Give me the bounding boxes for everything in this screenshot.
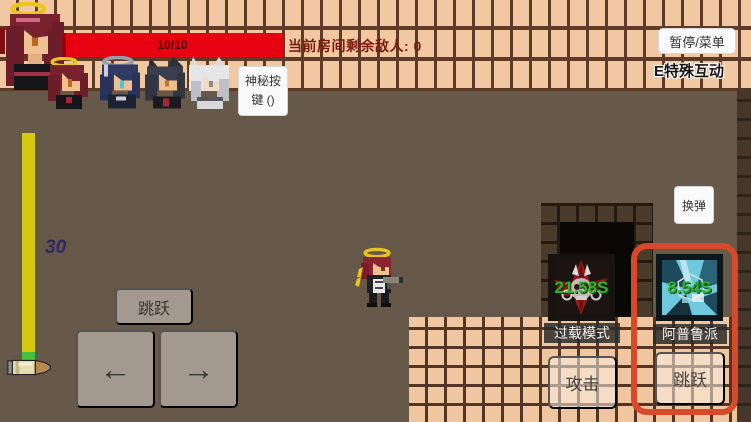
- right-arrow-icon: →: [183, 351, 215, 388]
- pause-menu-button[interactable]: 暂停/菜单: [658, 28, 736, 54]
- player-character: [351, 245, 405, 309]
- game-screen: 10/10 当前房间剩余敌人: 0 暂停/菜单 E特殊互动: [0, 0, 751, 422]
- skill-overload-icon[interactable]: 21.58S: [548, 254, 615, 321]
- health-value: 10/10: [157, 38, 187, 52]
- enemy-counter: 当前房间剩余敌人: 0: [288, 36, 422, 56]
- reload-button[interactable]: 换弹: [674, 186, 714, 224]
- wing-mark-icon: [355, 277, 361, 287]
- health-bar-notch: [62, 33, 66, 57]
- skill-jump-button[interactable]: 跳跃: [655, 352, 725, 405]
- team-portrait-4: [186, 57, 234, 109]
- halo-icon: [52, 58, 76, 65]
- attack-button[interactable]: 攻击: [548, 356, 617, 409]
- gun-icon: [383, 277, 401, 283]
- skill-apulupai-cooldown: 8.54S: [656, 278, 723, 298]
- bullet-icon: [6, 357, 54, 378]
- skill-overload-label: 过载模式: [544, 323, 620, 343]
- skill-apulupai-label: 阿普鲁派: [653, 324, 727, 344]
- mystery-key-label-line2: 键 (): [251, 91, 274, 110]
- special-interact-label: E特殊互动: [654, 60, 724, 81]
- health-bar: 10/10: [62, 33, 283, 57]
- move-right-button[interactable]: →: [159, 330, 238, 408]
- right-wall-shadow: [737, 88, 751, 422]
- jump-button[interactable]: 跳跃: [115, 288, 193, 325]
- skill-overload-cooldown: 21.58S: [548, 278, 615, 298]
- move-left-button[interactable]: ←: [76, 330, 155, 408]
- mystery-key-button[interactable]: 神秘按 键 (): [238, 66, 288, 116]
- left-arrow-icon: ←: [100, 351, 132, 388]
- skill-apulupai-icon[interactable]: 8.54S: [656, 254, 723, 321]
- edge-marker: [0, 28, 5, 54]
- mystery-key-label-line1: 神秘按: [245, 72, 281, 91]
- team-portrait-1: [46, 57, 92, 109]
- team-portrait-2: [98, 56, 144, 109]
- team-portrait-3: [143, 56, 189, 109]
- ammo-count: 30: [45, 237, 66, 259]
- ammo-gauge-bar: [22, 133, 35, 352]
- halo-icon: [104, 58, 132, 66]
- halo-icon: [365, 249, 389, 256]
- halo-icon: [12, 4, 44, 14]
